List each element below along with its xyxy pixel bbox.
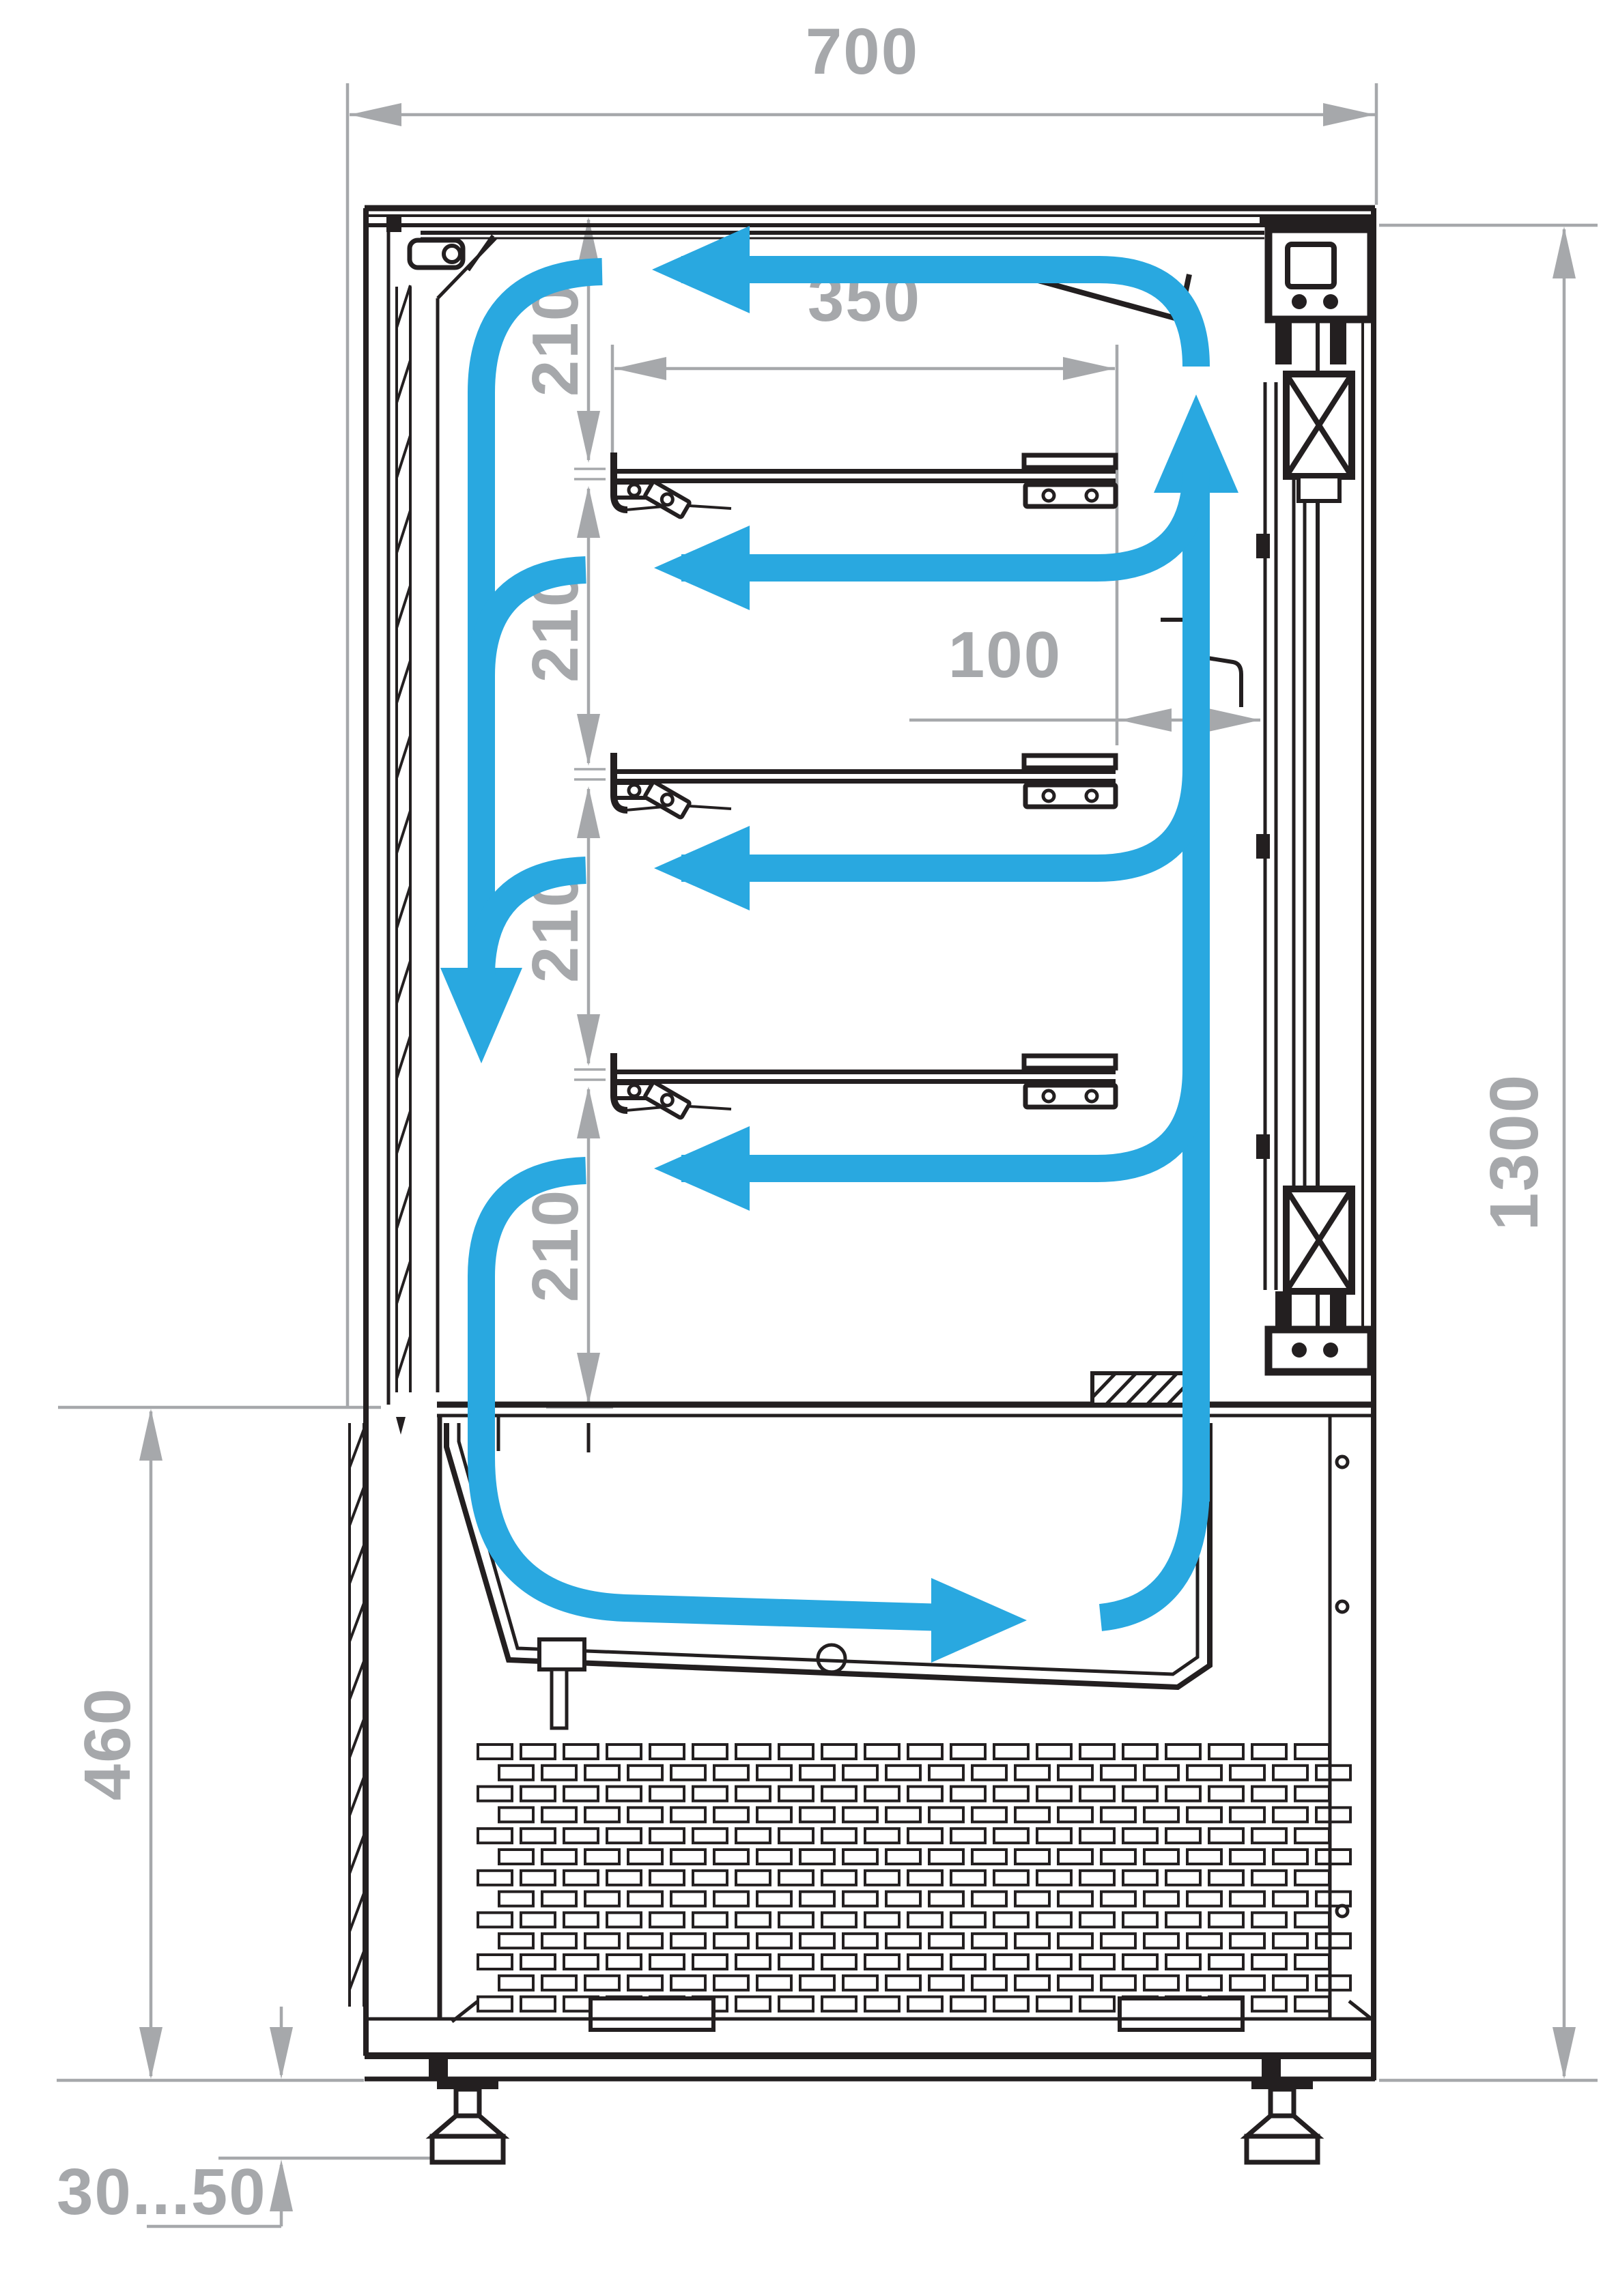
grille-slot xyxy=(499,1934,533,1948)
grille-slot xyxy=(1037,1871,1071,1885)
grille-slot xyxy=(1166,1745,1200,1759)
grille-slot xyxy=(542,1892,576,1906)
grille-slot xyxy=(585,1807,619,1822)
dimension-1300: 1300 xyxy=(1379,225,1598,2080)
grille-slot xyxy=(564,1745,598,1759)
grille-slot xyxy=(671,1892,705,1906)
grille-slot xyxy=(736,1871,770,1885)
grille-slot xyxy=(1252,1955,1286,1969)
grille-slot xyxy=(607,1955,641,1969)
grille-slot xyxy=(908,1955,942,1969)
grille-slot xyxy=(671,1766,705,1780)
label-display-height: 1300 xyxy=(1476,1074,1553,1231)
grille-slot xyxy=(1080,1871,1114,1885)
grille-slot xyxy=(1058,1807,1092,1822)
grille-slot xyxy=(564,1955,598,1969)
grille-slot xyxy=(1295,1912,1329,1927)
grille-slot xyxy=(1316,1850,1350,1864)
grille-slot xyxy=(951,1912,985,1927)
grille-slot xyxy=(693,1912,727,1927)
grille-slot xyxy=(607,1871,641,1885)
grille-slot xyxy=(822,1745,856,1759)
grille-slot xyxy=(1187,1807,1221,1822)
grille-slot xyxy=(1080,1912,1114,1927)
label-front-gap: 100 xyxy=(948,618,1062,691)
grille-slot xyxy=(650,1912,684,1927)
grille-slot xyxy=(1166,1955,1200,1969)
grille-slot xyxy=(1230,1976,1264,1990)
grille-slot xyxy=(1230,1934,1264,1948)
grille-slot xyxy=(628,1807,662,1822)
grille-slot xyxy=(521,1828,555,1843)
grille-slot xyxy=(671,1850,705,1864)
label-base-height: 460 xyxy=(71,1687,144,1800)
grille-slot xyxy=(865,1871,899,1885)
grille-slot xyxy=(1015,1892,1049,1906)
grille-slot xyxy=(843,1766,877,1780)
grille-slot xyxy=(757,1892,791,1906)
grille-slot xyxy=(972,1850,1006,1864)
grille-bracket-right xyxy=(1120,1998,1243,2030)
grille-slot xyxy=(499,1976,533,1990)
grille-slot xyxy=(607,1787,641,1801)
grille-slot xyxy=(607,1828,641,1843)
grille-slot xyxy=(1209,1912,1243,1927)
grille-slot xyxy=(1295,1955,1329,1969)
grille-slot xyxy=(1230,1766,1264,1780)
grille-slot xyxy=(1316,1807,1350,1822)
grille-slot xyxy=(1123,1787,1157,1801)
grille-slot xyxy=(714,1934,748,1948)
grille-slot xyxy=(1101,1976,1135,1990)
grille-slot xyxy=(908,1787,942,1801)
grille-slot xyxy=(1209,1745,1243,1759)
grille-slot xyxy=(865,1745,899,1759)
grille-slot xyxy=(822,1787,856,1801)
evaporator-tray xyxy=(446,1423,1210,1728)
grille-slot xyxy=(607,1912,641,1927)
grille-slot xyxy=(929,1766,963,1780)
grille-slot xyxy=(585,1850,619,1864)
grille-slot xyxy=(1316,1766,1350,1780)
grille-slot xyxy=(1209,1787,1243,1801)
grille-slot xyxy=(521,1745,555,1759)
grille-slot xyxy=(1144,1807,1178,1822)
grille-slot xyxy=(779,1912,813,1927)
airflow-left-arrow-shelf3-icon xyxy=(654,1126,750,1211)
grille-slot xyxy=(994,1787,1028,1801)
grille-slot xyxy=(736,1912,770,1927)
grille-slot xyxy=(929,1850,963,1864)
grille-slot xyxy=(542,1934,576,1948)
grille-slot xyxy=(499,1807,533,1822)
grille-slot xyxy=(865,1997,899,2011)
grille-slot xyxy=(1252,1745,1286,1759)
grille-slot xyxy=(1101,1892,1135,1906)
grille-slot xyxy=(585,1934,619,1948)
grille-slot xyxy=(1015,1976,1049,1990)
grille-slot xyxy=(800,1892,834,1906)
grille-slot xyxy=(1144,1766,1178,1780)
grille-slot xyxy=(1080,1997,1114,2011)
grille-slot xyxy=(1080,1828,1114,1843)
grille-slot xyxy=(1123,1912,1157,1927)
grille-slot xyxy=(1080,1745,1114,1759)
grille-slot xyxy=(585,1976,619,1990)
airflow-left-arrow-shelf1-icon xyxy=(654,526,750,610)
grille-slot xyxy=(1187,1766,1221,1780)
grille-slot xyxy=(1123,1745,1157,1759)
grille-slot xyxy=(1101,1934,1135,1948)
label-shelf-spacing-4: 210 xyxy=(519,1189,592,1302)
grille-slot xyxy=(1123,1955,1157,1969)
grille-slot xyxy=(671,1807,705,1822)
grille-slot xyxy=(908,1745,942,1759)
grille-slot xyxy=(714,1976,748,1990)
dimension-foot-range: 30...50 xyxy=(57,2007,437,2228)
grille-slot xyxy=(994,1871,1028,1885)
grille-slot xyxy=(1037,1997,1071,2011)
grille-slot xyxy=(972,1766,1006,1780)
grille-slot xyxy=(929,1976,963,1990)
grille-slot xyxy=(822,1871,856,1885)
grille-slot xyxy=(1037,1912,1071,1927)
grille-slot xyxy=(736,1745,770,1759)
grille-slot xyxy=(908,1912,942,1927)
airflow-right-arrow-icon xyxy=(931,1578,1027,1663)
grille-slot xyxy=(908,1997,942,2011)
wall-insulation-hatch xyxy=(397,285,410,1379)
door-bottom-hinge xyxy=(1268,1189,1371,1372)
grille-slot xyxy=(951,1828,985,1843)
grille-slot xyxy=(714,1892,748,1906)
grille-slot xyxy=(1316,1976,1350,1990)
grille-slot xyxy=(1316,1934,1350,1948)
grille-slot xyxy=(1230,1850,1264,1864)
grille-slot xyxy=(1316,1892,1350,1906)
grille-slot xyxy=(757,1766,791,1780)
grille-slot xyxy=(757,1807,791,1822)
grille-slot xyxy=(585,1766,619,1780)
grille-slot xyxy=(865,1828,899,1843)
grille-slot xyxy=(972,1976,1006,1990)
dimension-lines: 700 350 100 xyxy=(57,15,1598,2228)
grille-slot xyxy=(521,1871,555,1885)
grille-slot xyxy=(1101,1766,1135,1780)
grille-slot xyxy=(779,1745,813,1759)
airflow-upturn xyxy=(1101,1484,1196,1618)
grille-slot xyxy=(499,1766,533,1780)
drain-pipe xyxy=(552,1669,567,1728)
grille-slot xyxy=(800,1807,834,1822)
grille-slot xyxy=(822,1828,856,1843)
grille-slot xyxy=(865,1955,899,1969)
grille-bracket-left xyxy=(591,1998,713,2030)
grille-slot xyxy=(542,1766,576,1780)
grille-slot xyxy=(779,1828,813,1843)
adjustable-feet xyxy=(432,2080,1318,2162)
grille-slot xyxy=(951,1871,985,1885)
bottom-deck xyxy=(396,1372,1374,1451)
dimension-460: 460 xyxy=(57,1407,381,2080)
grille-slot xyxy=(1295,1828,1329,1843)
grille-slot xyxy=(1273,1850,1307,1864)
grille-slot xyxy=(1273,1892,1307,1906)
grille-slot xyxy=(865,1912,899,1927)
grille-slot xyxy=(1230,1892,1264,1906)
grille-slot xyxy=(714,1766,748,1780)
grille-slot xyxy=(1273,1807,1307,1822)
grille-slot xyxy=(886,1892,920,1906)
grille-slot xyxy=(1166,1828,1200,1843)
display-case-cross-section-diagram: 700 350 100 xyxy=(0,0,1616,2296)
grille-slot xyxy=(800,1934,834,1948)
grille-slot xyxy=(1037,1745,1071,1759)
lower-wall-hatch xyxy=(350,1429,364,1990)
grille-slot xyxy=(650,1745,684,1759)
grille-slot xyxy=(1252,1787,1286,1801)
grille-slot xyxy=(908,1871,942,1885)
grille-slot xyxy=(886,1850,920,1864)
grille-slot xyxy=(1058,1934,1092,1948)
grille-slot xyxy=(1273,1976,1307,1990)
grille-slot xyxy=(1209,1955,1243,1969)
grille-slot xyxy=(1295,1997,1329,2011)
grille-slot xyxy=(736,1787,770,1801)
grille-slot xyxy=(628,1976,662,1990)
grille-slot xyxy=(779,1997,813,2011)
grille-slot xyxy=(951,1745,985,1759)
grille-slot xyxy=(478,1828,512,1843)
grille-slot xyxy=(843,1934,877,1948)
grille-slot xyxy=(1295,1871,1329,1885)
grille-slot xyxy=(693,1828,727,1843)
grille-slot xyxy=(951,1997,985,2011)
grille-slot xyxy=(671,1934,705,1948)
grille-slot xyxy=(1209,1828,1243,1843)
grille-slot xyxy=(542,1976,576,1990)
dimension-700: 700 xyxy=(350,15,1375,126)
grille-slot xyxy=(1144,1892,1178,1906)
technical-drawing-page: 700 350 100 xyxy=(0,0,1616,2296)
airflow-down-arrow-icon xyxy=(440,968,522,1063)
grille-slot xyxy=(886,1934,920,1948)
grille-slot xyxy=(929,1934,963,1948)
grille-slot xyxy=(1058,1766,1092,1780)
grille-slot xyxy=(650,1871,684,1885)
grille-slot xyxy=(1058,1892,1092,1906)
label-overall-width: 700 xyxy=(806,15,919,88)
condensate-drip xyxy=(396,1417,406,1435)
grille-slot xyxy=(693,1871,727,1885)
grille-slot xyxy=(521,1787,555,1801)
grille-slot xyxy=(628,1892,662,1906)
grille-slot xyxy=(1015,1807,1049,1822)
grille-slot xyxy=(1080,1955,1114,1969)
grille-slot xyxy=(650,1787,684,1801)
grille-slot xyxy=(521,1912,555,1927)
label-foot-height-range: 30...50 xyxy=(57,2155,267,2228)
grille-slot xyxy=(1252,1997,1286,2011)
grille-slot xyxy=(972,1934,1006,1948)
grille-slot xyxy=(478,1787,512,1801)
grille-slot xyxy=(1166,1871,1200,1885)
grille-slot xyxy=(564,1787,598,1801)
grille-slot xyxy=(800,1766,834,1780)
grille-slot xyxy=(714,1807,748,1822)
grille-slot xyxy=(886,1807,920,1822)
grille-slot xyxy=(1144,1850,1178,1864)
dimension-210-group: 210 210 210 210 xyxy=(519,217,613,1407)
drain-hole xyxy=(818,1645,845,1672)
grille-slot xyxy=(736,1828,770,1843)
grille-slot xyxy=(1273,1934,1307,1948)
grille-slot xyxy=(822,1997,856,2011)
grille-slot xyxy=(1080,1787,1114,1801)
grille-slot xyxy=(1144,1934,1178,1948)
grille-slot xyxy=(908,1828,942,1843)
grille-slot xyxy=(1015,1766,1049,1780)
grille-slot xyxy=(1015,1934,1049,1948)
grille-slot xyxy=(1209,1871,1243,1885)
grille-slot xyxy=(865,1787,899,1801)
grille-slot xyxy=(1123,1871,1157,1885)
grille-slot xyxy=(1187,1934,1221,1948)
grille-slot xyxy=(1037,1955,1071,1969)
grille-slot xyxy=(693,1787,727,1801)
grille-slot xyxy=(951,1955,985,1969)
grille-slot xyxy=(1144,1976,1178,1990)
grille-slot xyxy=(693,1745,727,1759)
grille-slot xyxy=(499,1850,533,1864)
grille-slot xyxy=(757,1976,791,1990)
grille-slot xyxy=(757,1850,791,1864)
grille-slot xyxy=(994,1745,1028,1759)
grille-slot xyxy=(478,1912,512,1927)
airflow-left-arrow-shelf2-icon xyxy=(654,826,750,910)
grille-slot xyxy=(499,1892,533,1906)
grille-slot xyxy=(972,1807,1006,1822)
grille-slot xyxy=(521,1997,555,2011)
grille-slot xyxy=(521,1955,555,1969)
grille-slot xyxy=(843,1807,877,1822)
grille-slot xyxy=(929,1807,963,1822)
grille-slot xyxy=(779,1955,813,1969)
grille-slot xyxy=(585,1892,619,1906)
grille-slot xyxy=(564,1912,598,1927)
grille-slot xyxy=(693,1955,727,1969)
grille-slot xyxy=(1187,1850,1221,1864)
grille-slot xyxy=(1230,1807,1264,1822)
grille-slot xyxy=(714,1850,748,1864)
grille-slot xyxy=(736,1955,770,1969)
grille-slot xyxy=(650,1955,684,1969)
grille-slot xyxy=(628,1850,662,1864)
grille-slot xyxy=(736,1997,770,2011)
grille-slot xyxy=(607,1745,641,1759)
grille-slot xyxy=(1101,1850,1135,1864)
grille-slot xyxy=(757,1934,791,1948)
grille-slot xyxy=(478,1745,512,1759)
grille-slot xyxy=(1166,1912,1200,1927)
grille-slot xyxy=(886,1766,920,1780)
grille-slot xyxy=(1273,1766,1307,1780)
left-wall-upper xyxy=(366,208,438,1407)
grille-slot xyxy=(779,1787,813,1801)
grille-slot xyxy=(1166,1787,1200,1801)
grille-slot xyxy=(1252,1912,1286,1927)
grille-slot xyxy=(994,1955,1028,1969)
grille-slot xyxy=(822,1912,856,1927)
grille-slot xyxy=(628,1934,662,1948)
grille-slot xyxy=(1295,1745,1329,1759)
grille-slot xyxy=(542,1850,576,1864)
grille-slot xyxy=(1187,1892,1221,1906)
airflow-top-run xyxy=(681,270,1196,367)
grille-slot xyxy=(779,1871,813,1885)
grille-slot xyxy=(564,1828,598,1843)
grille-slot xyxy=(671,1976,705,1990)
grille-slot xyxy=(1037,1787,1071,1801)
grille-slot xyxy=(1187,1976,1221,1990)
grille-slot xyxy=(1015,1850,1049,1864)
grille-slot xyxy=(994,1828,1028,1843)
grille-slot xyxy=(478,1871,512,1885)
grille-slot xyxy=(478,1997,512,2011)
grille-slot xyxy=(542,1807,576,1822)
grille-slot xyxy=(1037,1828,1071,1843)
grille-slot xyxy=(1252,1871,1286,1885)
grille-slot xyxy=(628,1766,662,1780)
grille-slot xyxy=(800,1976,834,1990)
grille-slot xyxy=(1123,1828,1157,1843)
grille-slot xyxy=(1101,1807,1135,1822)
grille-slot xyxy=(843,1892,877,1906)
grille-slot xyxy=(843,1976,877,1990)
ventilation-grille xyxy=(478,1745,1350,2011)
grille-slot xyxy=(822,1955,856,1969)
grille-slot xyxy=(994,1912,1028,1927)
grille-slot xyxy=(564,1871,598,1885)
grille-slot xyxy=(1295,1787,1329,1801)
grille-slot xyxy=(1252,1828,1286,1843)
grille-slot xyxy=(929,1892,963,1906)
grille-slot xyxy=(1058,1850,1092,1864)
grille-slot xyxy=(1058,1976,1092,1990)
grille-slot xyxy=(650,1828,684,1843)
grille-slot xyxy=(843,1850,877,1864)
grille-slot xyxy=(951,1787,985,1801)
grille-slot xyxy=(478,1955,512,1969)
grille-slot xyxy=(994,1997,1028,2011)
grille-slot xyxy=(972,1892,1006,1906)
grille-slot xyxy=(886,1976,920,1990)
grille-slot xyxy=(800,1850,834,1864)
